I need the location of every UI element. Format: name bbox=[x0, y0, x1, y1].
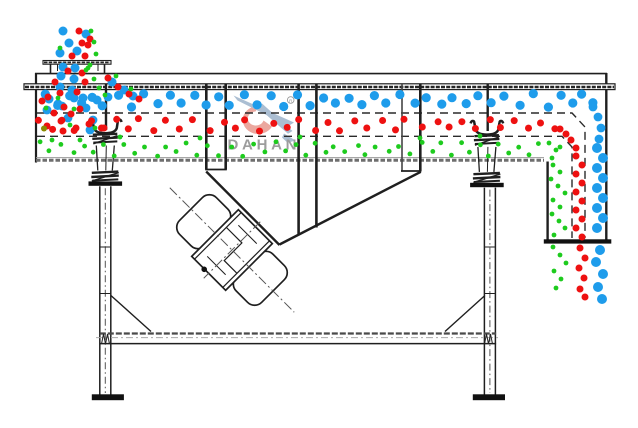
svg-text:R: R bbox=[289, 98, 293, 104]
